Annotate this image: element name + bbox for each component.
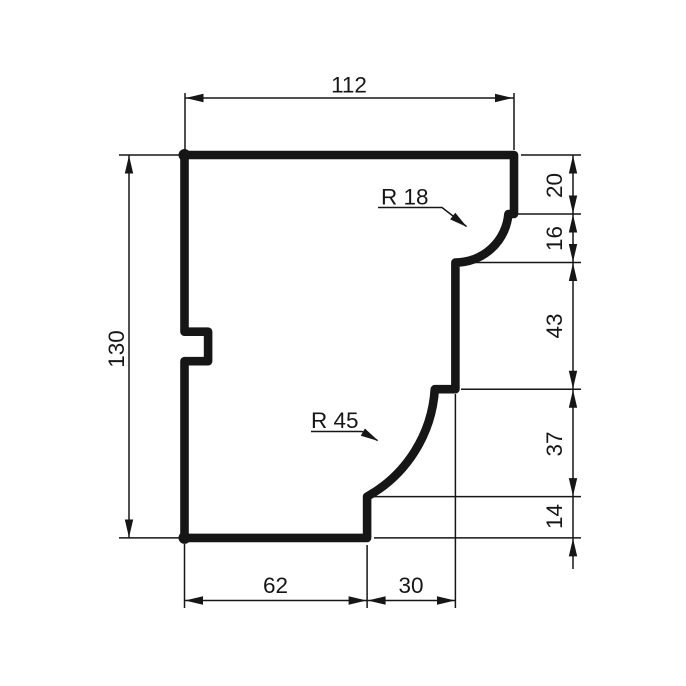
arrow-down-icon [569,244,577,262]
technical-drawing-canvas: 112 130 20 16 43 37 14 [0,0,686,686]
dim-label-112: 112 [331,73,367,98]
arrow-right-icon [437,596,455,604]
arrow-right-icon [495,94,513,102]
dim-label-62: 62 [263,573,288,598]
arrow-down-icon [569,478,577,496]
arrow-down-icon [125,520,133,538]
dim-label-20: 20 [542,173,567,198]
arrow-up-icon [569,538,577,556]
profile-outline [185,155,515,538]
leader-arrow-icon [361,428,381,444]
dim-label-37: 37 [542,431,567,456]
arrow-left-icon [368,596,386,604]
molding-profile-drawing: 112 130 20 16 43 37 14 [0,0,686,686]
dim-label-14: 14 [542,504,567,529]
arrow-up-icon [569,215,577,233]
leader-r45: R 45 [311,408,381,445]
arrow-down-icon [569,196,577,214]
corner-dot-top-left [179,149,191,161]
arrow-up-icon [569,390,577,408]
dim-height-left: 130 [104,155,180,538]
leader-r18: R 18 [378,185,470,231]
arrow-left-icon [186,94,204,102]
radius-label-r18: R 18 [381,185,429,210]
arrow-up-icon [569,263,577,281]
arrow-right-icon [349,596,367,604]
dim-label-43: 43 [542,313,567,338]
dim-width-top: 112 [185,73,514,151]
arrow-left-icon [185,596,203,604]
dim-right-stack: 20 16 43 37 14 [374,155,581,569]
profile [179,149,515,544]
radius-label-r45: R 45 [311,408,359,433]
corner-dot-bottom-left [179,532,191,544]
dim-label-130: 130 [104,330,129,368]
arrow-up-icon [569,156,577,174]
arrow-down-icon [569,371,577,389]
dim-label-16: 16 [542,226,567,251]
arrow-up-icon [125,156,133,174]
dim-label-30: 30 [398,573,423,598]
